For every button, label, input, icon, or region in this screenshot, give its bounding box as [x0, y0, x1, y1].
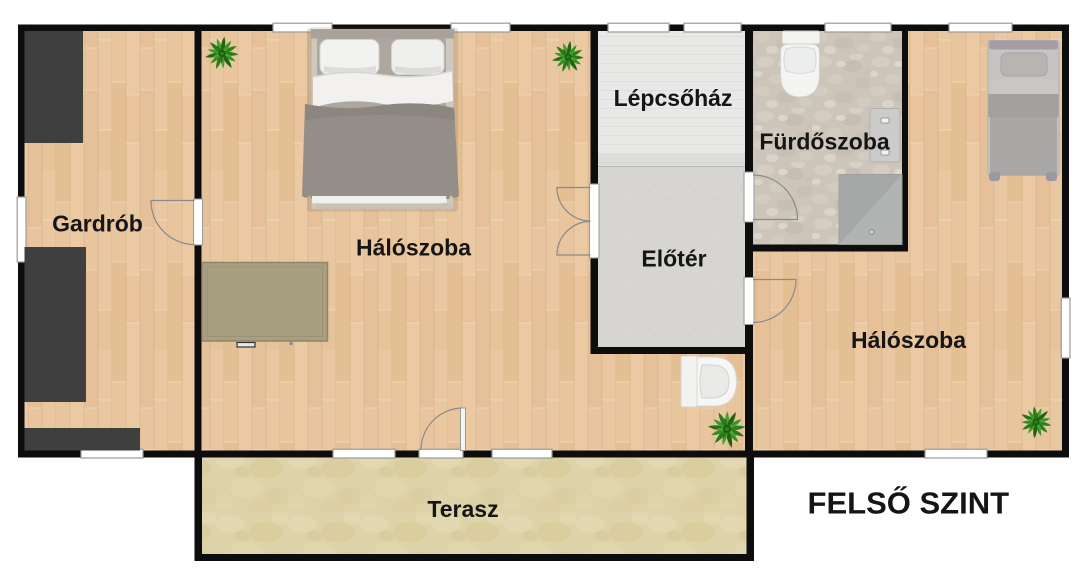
svg-text:Lépcsőház: Lépcsőház [614, 85, 733, 111]
svg-text:Előtér: Előtér [641, 246, 706, 272]
svg-text:Gardrób: Gardrób [52, 211, 143, 237]
svg-text:Hálószoba: Hálószoba [356, 235, 471, 261]
svg-text:Terasz: Terasz [427, 496, 498, 522]
svg-text:Fürdőszoba: Fürdőszoba [759, 129, 890, 155]
svg-text:FELSŐ SZINT: FELSŐ SZINT [808, 485, 1010, 521]
svg-text:Hálószoba: Hálószoba [851, 327, 966, 353]
